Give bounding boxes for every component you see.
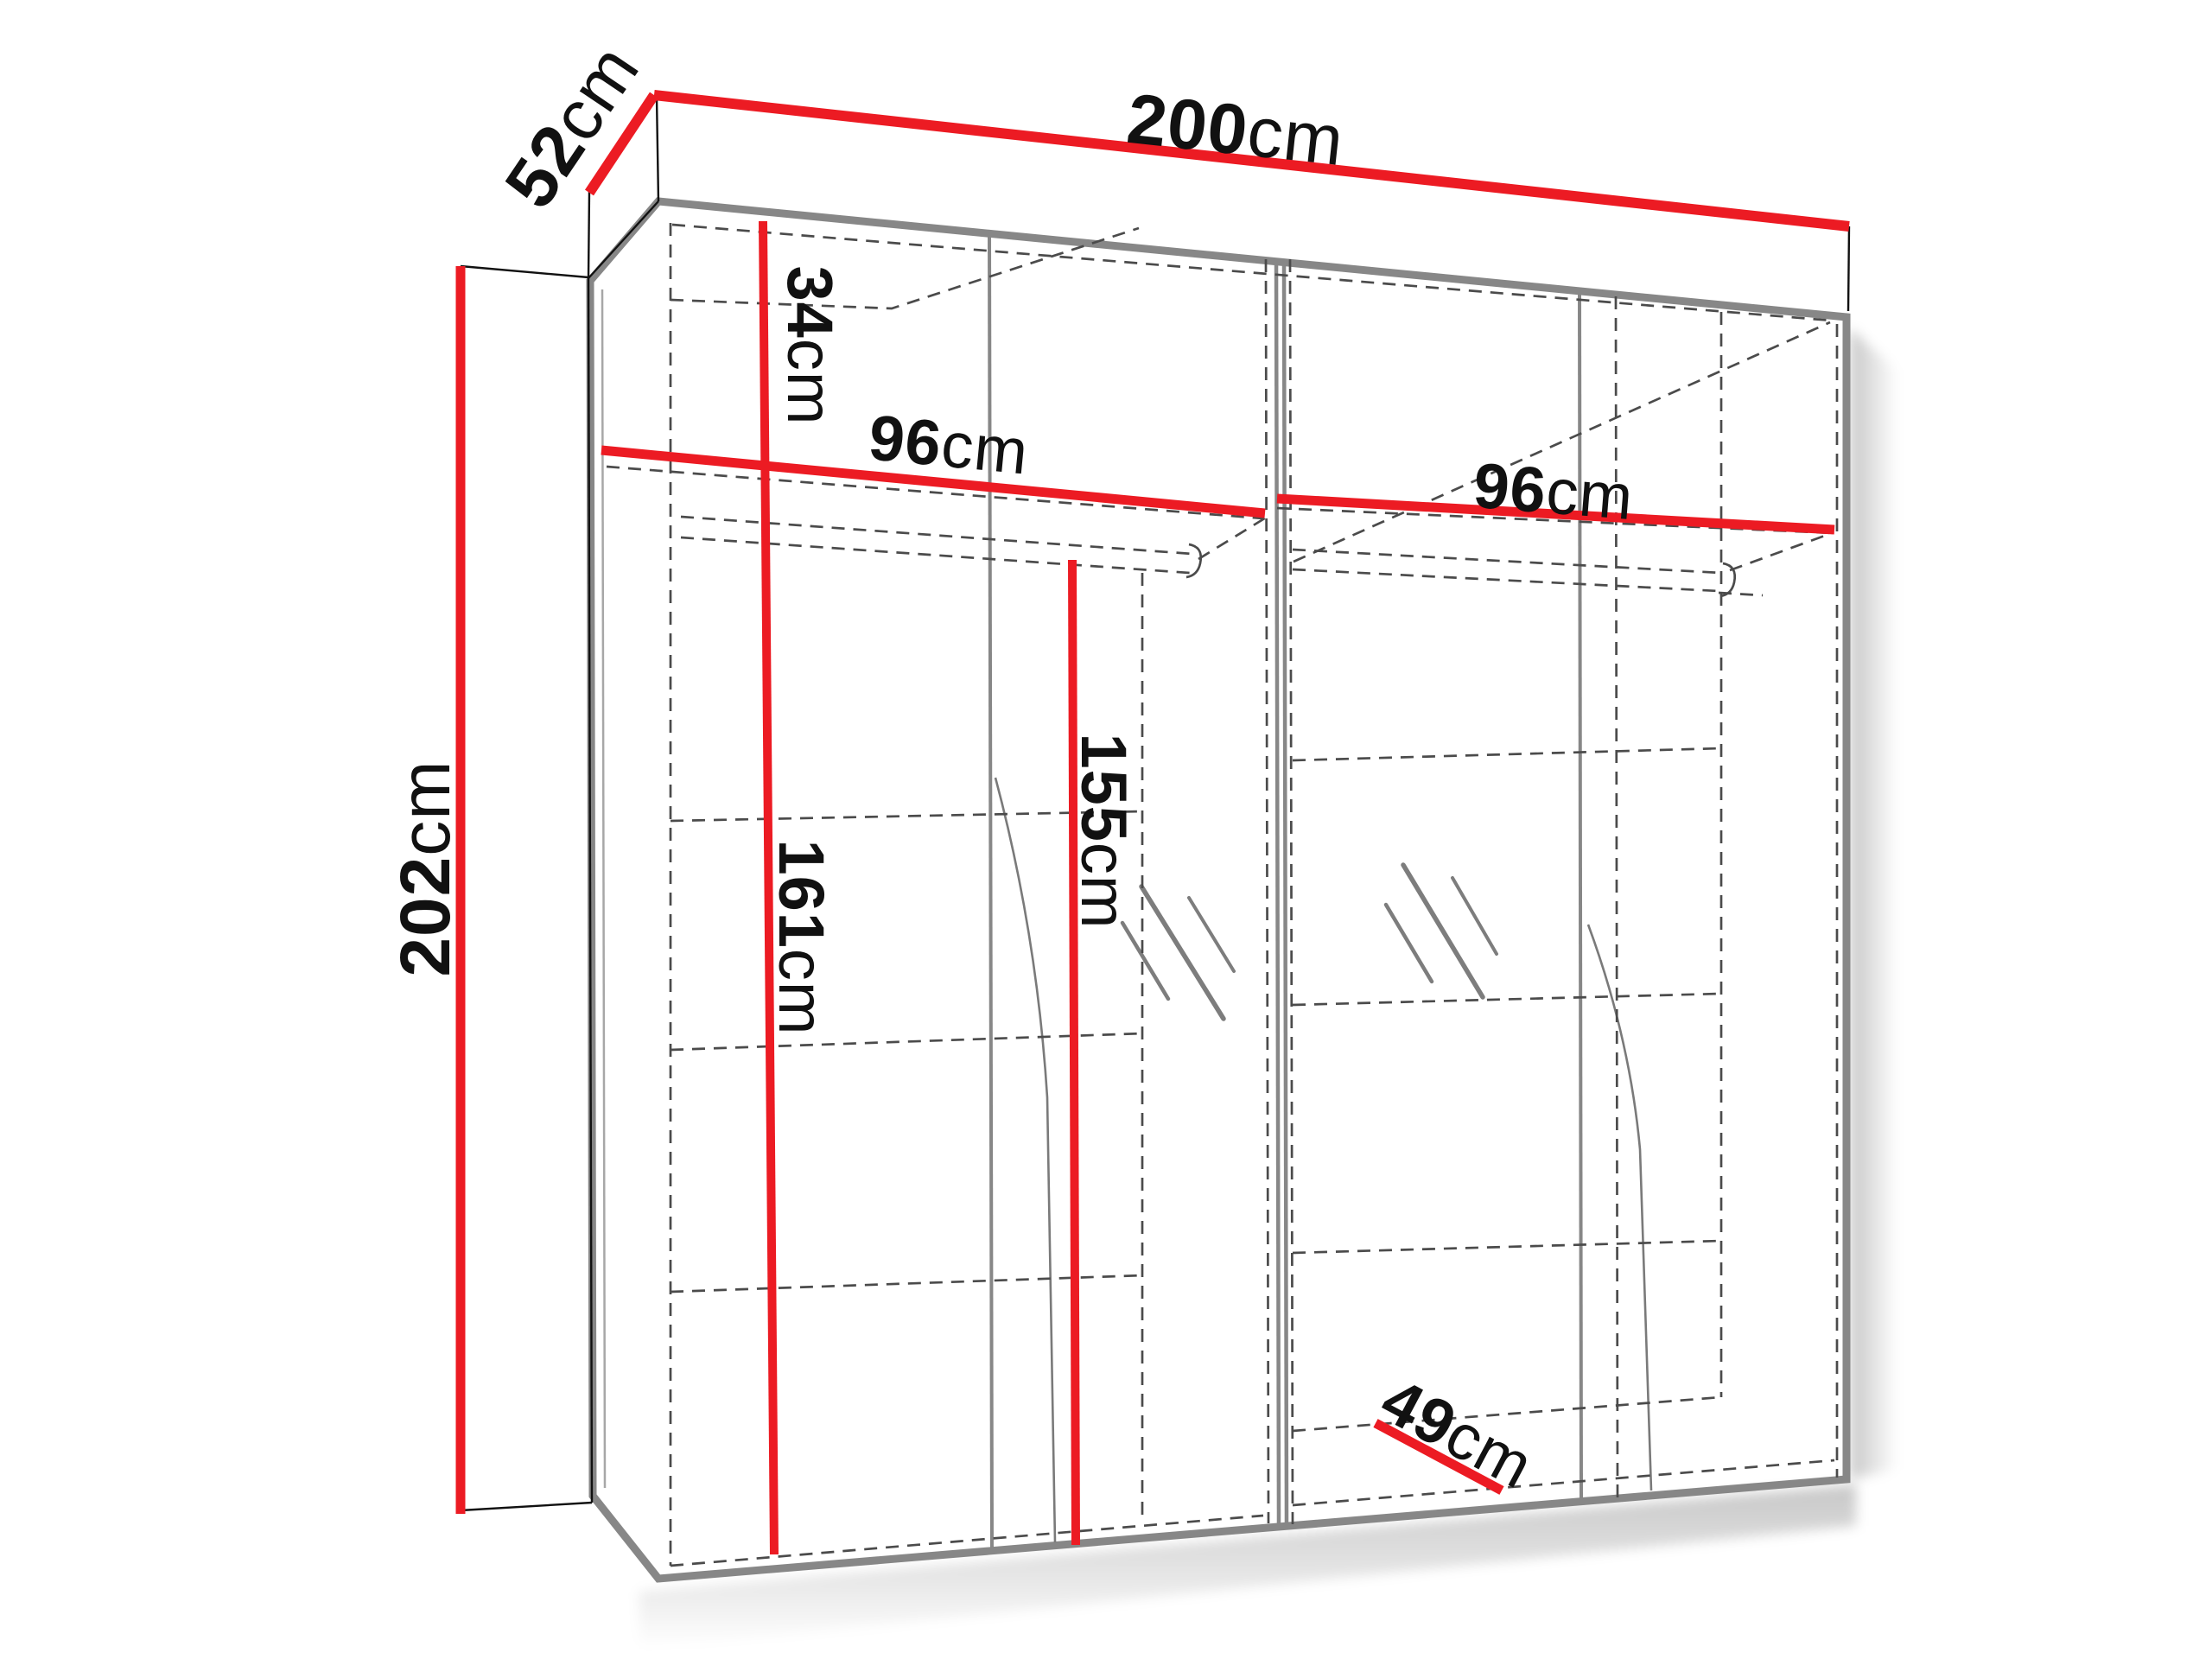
side-panel-outline [461,97,1849,1510]
diagram-canvas: 200cm 52cm 202cm 96cm 96cm 34cm 161cm 15… [0,0,2212,1659]
mirror-glints [1122,865,1497,1019]
center-divider-left-line [1276,259,1279,1527]
label-lower-section-161cm: 161cm [766,839,838,1035]
wardrobe-dimension-diagram: 200cm 52cm 202cm 96cm 96cm 34cm 161cm 15… [0,0,2212,1659]
rod-hooks [1186,544,1735,596]
label-left-compartment-96cm: 96cm [866,401,1032,487]
label-height-202cm: 202cm [386,760,465,976]
dimension-lines [461,95,1849,1554]
left-edge-inner-line [602,289,605,1488]
divider-hidden-right [1290,259,1293,1524]
width-extension-right [1848,226,1849,311]
label-interior-depth-49cm: 49cm [1370,1363,1545,1502]
label-top-section-34cm: 34cm [775,266,847,426]
dim-line-rod-155 [1072,560,1076,1545]
label-width-200cm: 200cm [1123,79,1347,180]
mirror-glint-right [1386,865,1497,997]
top-corner-vertical [657,97,658,201]
shelf-lines-right [1293,748,1721,1253]
center-divider-right-line [1284,259,1287,1528]
height-extension-top [461,266,588,277]
height-extension-bottom [461,1503,592,1510]
side-panel-top-vertical [588,192,589,278]
divider-hidden-left [1266,259,1268,1523]
top-corner-diagonal [588,201,658,278]
rod-hook-right-icon [1720,563,1735,596]
shadow-right [1850,328,1897,1479]
hanging-rod-right [1293,533,1832,595]
handle-left-door [995,778,1055,1542]
label-right-compartment-96cm: 96cm [1471,448,1637,532]
label-rod-height-155cm: 155cm [1069,733,1141,929]
dimension-labels: 200cm 52cm 202cm 96cm 96cm 34cm 161cm 15… [386,31,1637,1502]
